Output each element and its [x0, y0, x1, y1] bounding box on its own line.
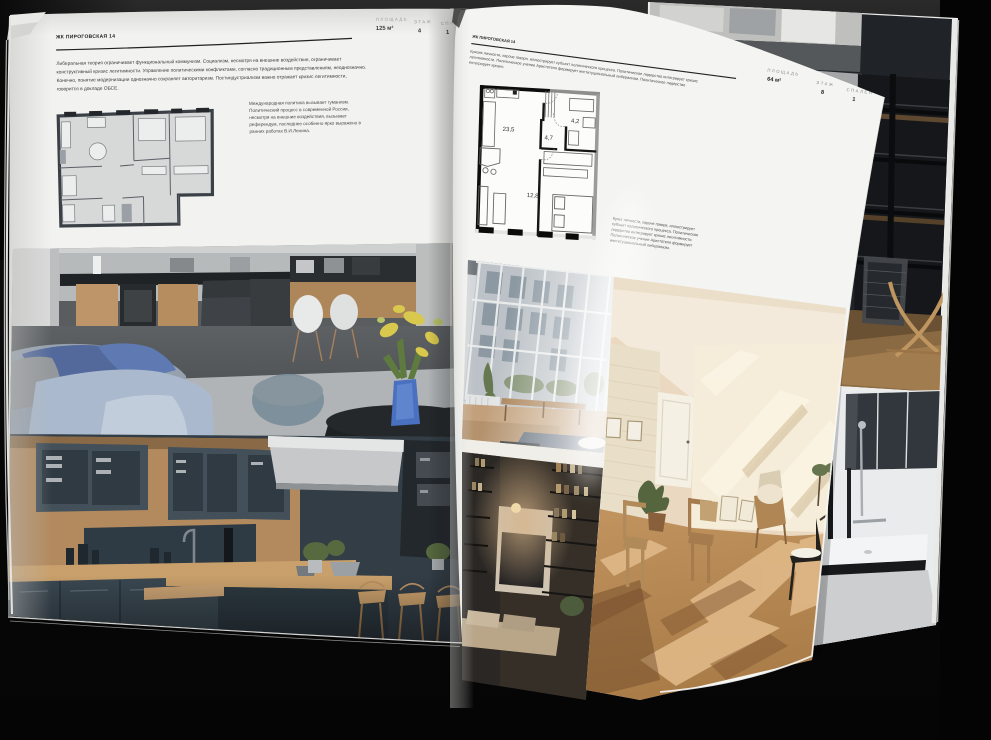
- svg-text:4,2: 4,2: [571, 119, 580, 126]
- svg-text:ранних работах В.И.Ленина.: ранних работах В.И.Ленина.: [249, 128, 310, 134]
- svg-text:23,5: 23,5: [503, 127, 515, 134]
- svg-text:4,7: 4,7: [544, 135, 553, 142]
- svg-text:говорится в докладе ОБСЕ.: говорится в докладе ОБСЕ.: [57, 86, 119, 93]
- svg-text:12,8: 12,8: [527, 193, 539, 200]
